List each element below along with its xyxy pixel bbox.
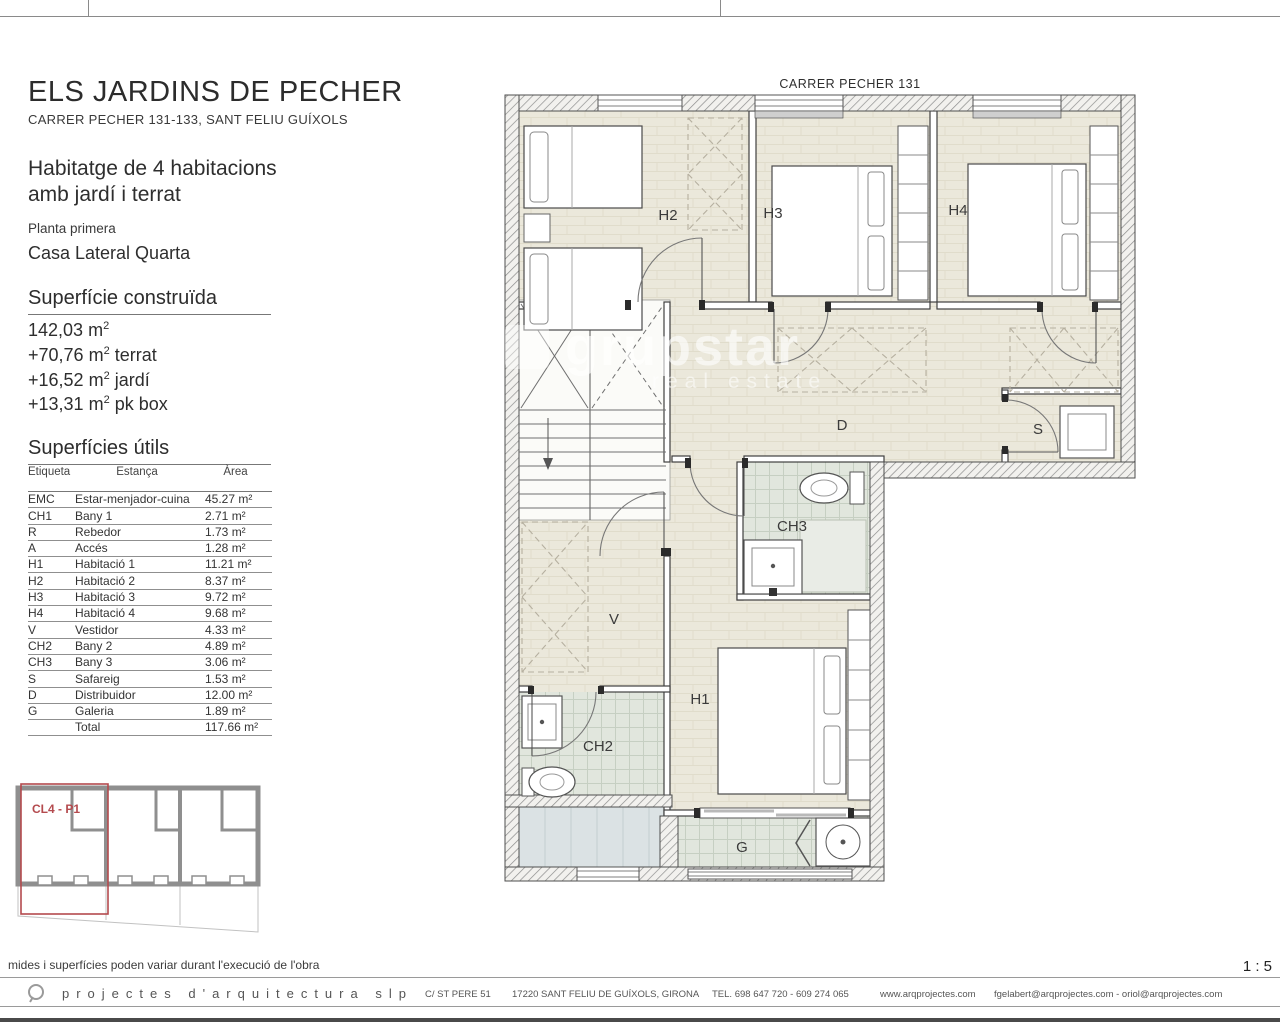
bed-icon	[718, 648, 846, 794]
table-row: CH1 Bany 1 2.71 m²	[28, 508, 272, 524]
shower-zone	[800, 520, 866, 592]
room-label-ch3: CH3	[777, 518, 807, 535]
plot-boundary	[18, 884, 258, 932]
room-label-g: G	[736, 839, 748, 856]
table-row: S Safareig 1.53 m²	[28, 671, 272, 687]
footer-phone: TEL. 698 647 720 - 609 274 065	[712, 989, 849, 1000]
bed-icon	[524, 126, 642, 208]
surfaces-table-header: Etiqueta Estança Àrea	[28, 466, 272, 492]
floor-name: Planta primera	[28, 221, 116, 236]
footer-line	[0, 1006, 1280, 1007]
sheet-top-strip	[0, 0, 1280, 17]
table-row: H2 Habitació 2 8.37 m²	[28, 573, 272, 589]
built-area-heading: Superfície construïda	[28, 287, 271, 315]
table-row: V Vestidor 4.33 m²	[28, 622, 272, 638]
disclaimer-note: mides i superfícies poden variar durant …	[8, 958, 319, 972]
room-label-h1: H1	[690, 691, 709, 708]
built-area-line: +16,52 m2 jardí	[28, 370, 150, 391]
sink-icon	[744, 540, 802, 596]
room-label-s: S	[1033, 421, 1043, 438]
bed-icon	[524, 248, 642, 330]
table-row: Total 117.66 m²	[28, 720, 272, 736]
strip-divider	[720, 0, 721, 16]
footer-web: www.arqprojectes.com	[880, 989, 976, 1000]
project-address: CARRER PECHER 131-133, SANT FELIU GUÍXOL…	[28, 112, 348, 127]
summary-line-1: Habitatge de 4 habitacions	[28, 157, 277, 181]
window-h1-south	[700, 808, 850, 818]
built-area-line: +70,76 m2 terrat	[28, 345, 157, 366]
window-h4	[973, 95, 1061, 118]
footer-line	[0, 977, 1280, 978]
room-label-ch2: CH2	[583, 738, 613, 755]
room-label-h4: H4	[948, 202, 967, 219]
toilet-icon	[800, 472, 864, 504]
wardrobe-icon	[1090, 126, 1118, 300]
table-row: R Rebedor 1.73 m²	[28, 525, 272, 541]
table-row: D Distribuidor 12.00 m²	[28, 688, 272, 704]
sink-icon	[1060, 406, 1114, 458]
window-h3	[755, 95, 843, 118]
wardrobe-icon	[898, 126, 928, 300]
room-label-h3: H3	[763, 205, 782, 222]
table-row: G Galeria 1.89 m²	[28, 704, 272, 720]
surfaces-table: Etiqueta Estança Àrea EMC Estar-menjador…	[28, 466, 272, 736]
street-label: CARRER PECHER 131	[779, 77, 920, 91]
nightstand	[524, 214, 550, 242]
strip-divider	[88, 0, 89, 16]
room-label-v: V	[609, 611, 619, 628]
footer-emails: fgelabert@arqprojectes.com - oriol@arqpr…	[994, 989, 1222, 1000]
table-row: CH2 Bany 2 4.89 m²	[28, 639, 272, 655]
table-row: A Accés 1.28 m²	[28, 541, 272, 557]
house-name: Casa Lateral Quarta	[28, 243, 190, 264]
key-plan: CL4 - P1	[8, 780, 270, 948]
drawing-sheet: ELS JARDINS DE PECHER CARRER PECHER 131-…	[0, 0, 1280, 1024]
built-area-line: 142,03 m2	[28, 320, 109, 341]
wardrobe-icon	[848, 610, 870, 800]
table-row: H4 Habitació 4 9.68 m²	[28, 606, 272, 622]
summary-line-2: amb jardí i terrat	[28, 183, 181, 207]
table-row: H1 Habitació 1 11.21 m²	[28, 557, 272, 573]
architect-logo-icon	[26, 983, 46, 1008]
room-label-h2: H2	[658, 207, 677, 224]
architect-brand: projectes d'arquitectura slp	[62, 986, 413, 1001]
built-area-line: +13,31 m2 pk box	[28, 394, 168, 415]
surfaces-table-body: EMC Estar-menjador-cuina 45.27 m² CH1 Ba…	[28, 492, 272, 736]
table-row: EMC Estar-menjador-cuina 45.27 m²	[28, 492, 272, 508]
window-g-south	[688, 869, 852, 879]
terrace-door	[577, 867, 639, 881]
window-h2	[598, 95, 682, 111]
table-row: H3 Habitació 3 9.72 m²	[28, 590, 272, 606]
room-label-d: D	[837, 417, 848, 434]
footer-address: C/ ST PERE 51	[425, 989, 491, 1000]
project-title: ELS JARDINS DE PECHER	[28, 76, 403, 109]
surfaces-heading: Superfícies útils	[28, 437, 271, 465]
bed-icon	[772, 166, 892, 296]
bed-icon	[968, 164, 1086, 296]
floor-plan: CARRER PECHER 131	[498, 74, 1146, 886]
keyplan-unit-label: CL4 - P1	[32, 802, 80, 816]
washing-machine-icon	[816, 818, 870, 866]
table-row: CH3 Bany 3 3.06 m²	[28, 655, 272, 671]
toilet-icon	[522, 767, 575, 797]
scale-label: 1 : 5	[1243, 958, 1272, 975]
sink-icon	[522, 696, 562, 748]
sheet-bottom-edge	[0, 1018, 1280, 1022]
footer-city: 17220 SANT FELIU DE GUÍXOLS, GIRONA	[512, 989, 699, 1000]
